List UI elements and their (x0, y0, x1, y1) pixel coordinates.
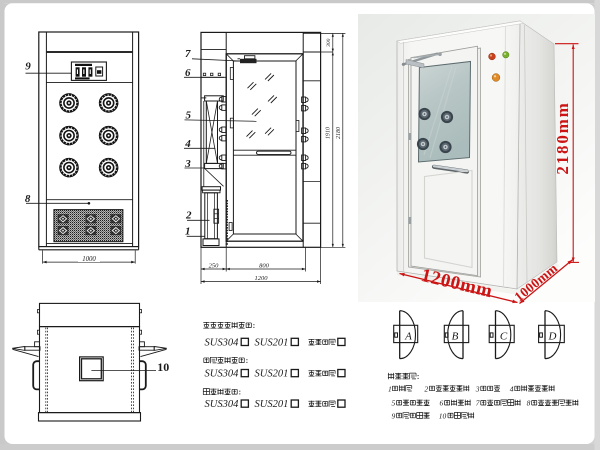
svg-text:2: 2 (424, 384, 428, 393)
svg-text:SUS304: SUS304 (205, 337, 240, 348)
svg-text:8: 8 (527, 399, 531, 408)
svg-text:6: 6 (440, 399, 444, 408)
svg-text:1: 1 (388, 384, 392, 393)
svg-text:9: 9 (392, 411, 396, 420)
svg-text:SUS201: SUS201 (255, 369, 289, 380)
svg-text:5: 5 (392, 399, 396, 408)
svg-text:SUS304: SUS304 (205, 399, 240, 410)
svg-text:B: B (452, 331, 459, 343)
svg-text:SUS304: SUS304 (205, 369, 240, 380)
svg-text:7: 7 (476, 399, 480, 408)
svg-text:4: 4 (510, 384, 514, 393)
svg-text:300: 300 (326, 38, 332, 48)
svg-text:A: A (404, 331, 412, 343)
svg-text:250: 250 (209, 262, 220, 269)
svg-text:10: 10 (157, 360, 169, 374)
svg-text:1000: 1000 (82, 256, 96, 263)
svg-text:3: 3 (475, 384, 480, 393)
svg-text:2180mm: 2180mm (553, 101, 572, 174)
svg-text:2180: 2180 (336, 127, 342, 139)
svg-text:1: 1 (185, 226, 191, 238)
svg-text:D: D (548, 331, 557, 343)
svg-text:SUS201: SUS201 (255, 337, 289, 348)
svg-text:1910: 1910 (326, 127, 332, 139)
svg-text:SUS201: SUS201 (255, 399, 289, 410)
svg-text:9: 9 (25, 61, 31, 73)
svg-text:C: C (500, 331, 508, 343)
svg-text:800: 800 (259, 262, 270, 269)
svg-text:10: 10 (439, 411, 447, 420)
svg-text:7: 7 (185, 48, 191, 60)
svg-text:2: 2 (185, 209, 192, 221)
svg-text:1200: 1200 (255, 275, 269, 282)
